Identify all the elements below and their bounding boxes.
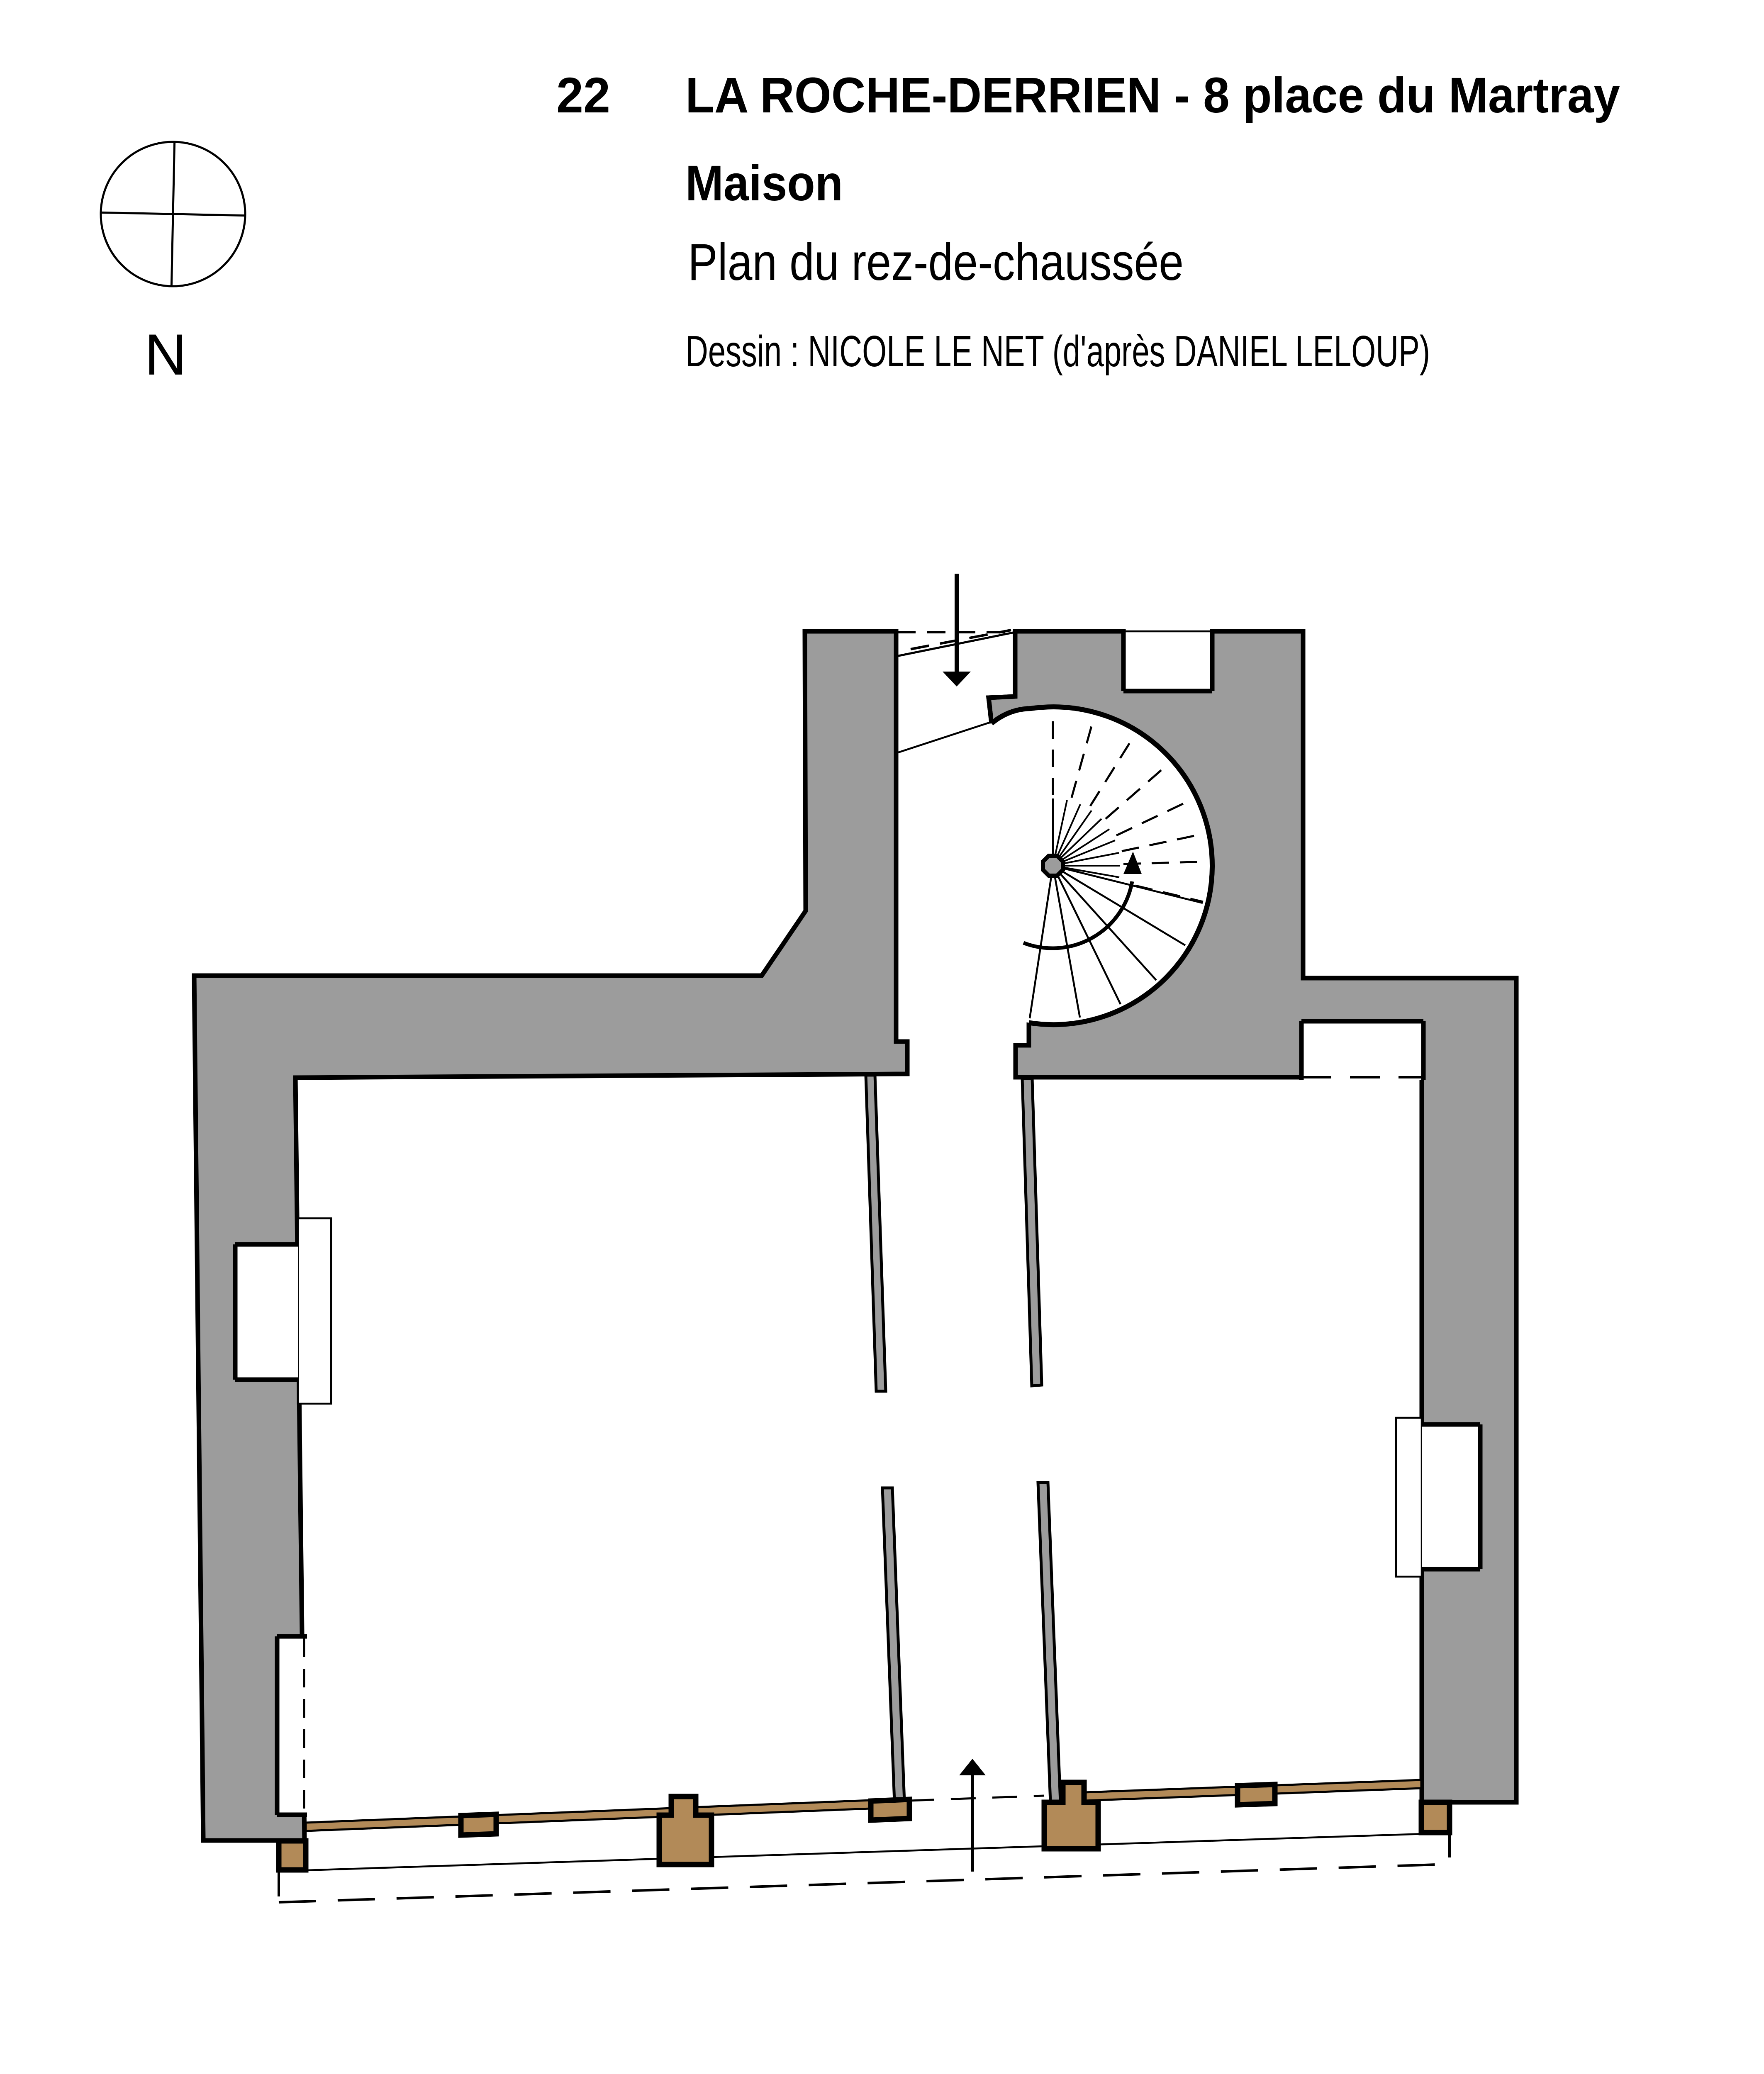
svg-text:22: 22 (556, 67, 610, 123)
svg-text:LA ROCHE-DERRIEN - 8 place du: LA ROCHE-DERRIEN - 8 place du Martray (685, 67, 1620, 123)
svg-text:Dessin : NICOLE LE NET (d'aprè: Dessin : NICOLE LE NET (d'après DANIEL L… (685, 327, 1430, 376)
svg-text:Plan du rez-de-chaussée: Plan du rez-de-chaussée (688, 234, 1184, 291)
svg-text:N: N (144, 322, 186, 387)
svg-text:Maison: Maison (685, 155, 843, 211)
